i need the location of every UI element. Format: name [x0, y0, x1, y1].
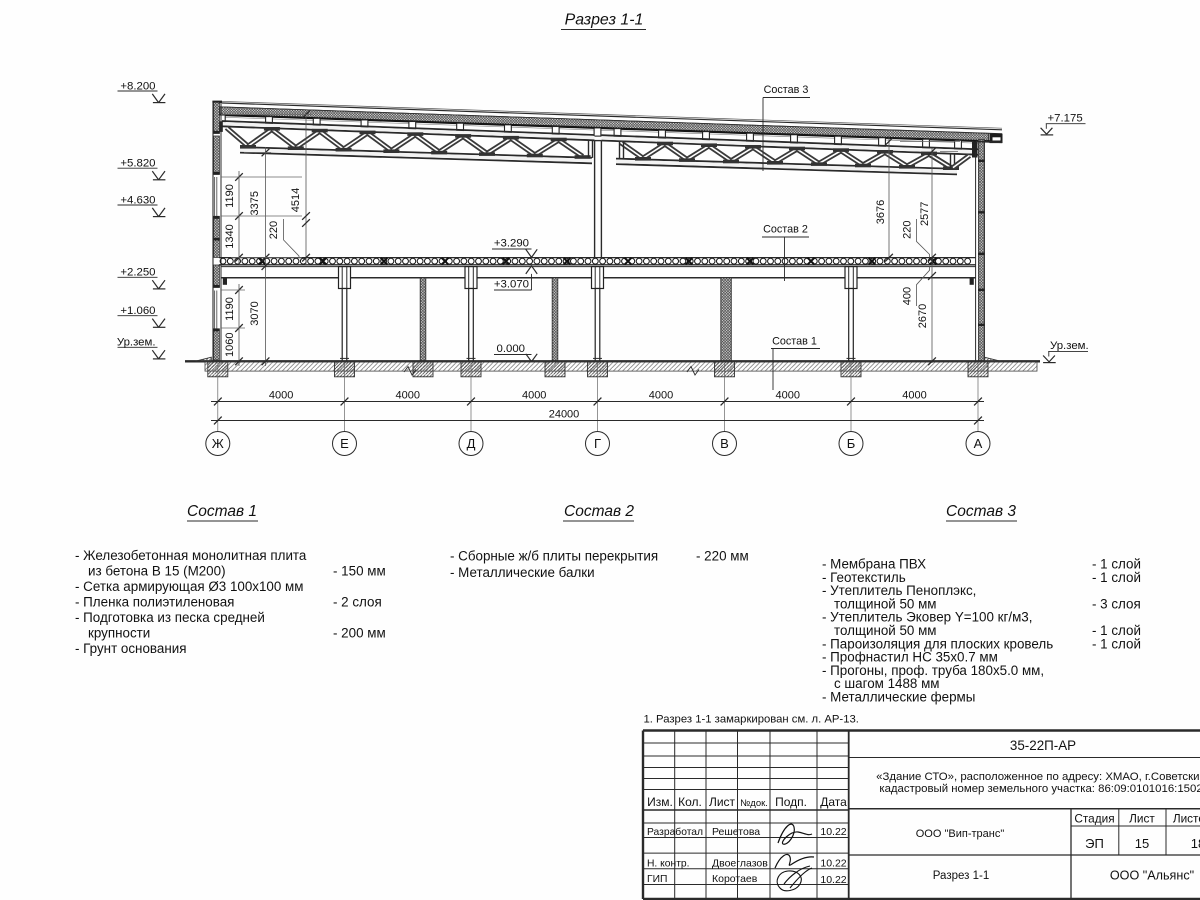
- svg-text:0.000: 0.000: [496, 343, 525, 355]
- svg-text:2670: 2670: [917, 304, 929, 328]
- svg-text:- Металлические фермы: - Металлические фермы: [822, 690, 975, 705]
- svg-text:4000: 4000: [776, 389, 800, 401]
- svg-text:1. Разрез 1-1 замаркирован см.: 1. Разрез 1-1 замаркирован см. л. АР-13.: [644, 714, 859, 726]
- svg-text:- Железобетонная монолитная п: - Железобетонная монолитная плита: [75, 548, 307, 563]
- svg-text:- 200 мм: - 200 мм: [333, 626, 386, 641]
- svg-text:кадастровый номер земельного у: кадастровый номер земельного участка: 86…: [879, 783, 1200, 795]
- svg-text:10.22: 10.22: [820, 858, 846, 870]
- svg-text:- 220 мм: - 220 мм: [696, 548, 749, 563]
- svg-text:ЭП: ЭП: [1085, 836, 1104, 851]
- svg-text:4000: 4000: [649, 389, 673, 401]
- svg-text:3070: 3070: [249, 301, 261, 325]
- svg-text:- 150 мм: - 150 мм: [333, 564, 386, 579]
- svg-text:Н. контр.: Н. контр.: [647, 859, 690, 870]
- svg-text:- Сборные ж/б плиты перекрытия: - Сборные ж/б плиты перекрытия: [450, 548, 658, 563]
- svg-text:Состав 2: Состав 2: [564, 503, 634, 520]
- svg-text:Г: Г: [594, 436, 601, 451]
- svg-text:24000: 24000: [549, 409, 580, 421]
- svg-text:3375: 3375: [249, 191, 261, 215]
- svg-text:- Пленка полиэтиленовая: - Пленка полиэтиленовая: [75, 595, 234, 610]
- svg-text:4000: 4000: [902, 389, 926, 401]
- svg-text:Разработал: Разработал: [647, 826, 703, 838]
- svg-text:крупности: крупности: [88, 626, 150, 641]
- svg-text:Состав 3: Состав 3: [946, 503, 1016, 520]
- svg-text:+8.200: +8.200: [120, 80, 155, 92]
- svg-text:Подп.: Подп.: [775, 795, 807, 809]
- svg-text:Состав 1: Состав 1: [772, 336, 817, 348]
- svg-text:Изм.: Изм.: [647, 795, 673, 809]
- svg-text:- Металлические балки: - Металлические балки: [450, 565, 595, 580]
- svg-text:4000: 4000: [522, 389, 546, 401]
- svg-text:4514: 4514: [290, 188, 302, 212]
- svg-text:4000: 4000: [269, 389, 293, 401]
- svg-text:Разрез 1-1: Разрез 1-1: [933, 870, 989, 882]
- svg-text:- 3 слоя: - 3 слоя: [1092, 596, 1141, 611]
- svg-text:1060: 1060: [224, 332, 236, 356]
- svg-text:№док.: №док.: [740, 798, 768, 809]
- svg-text:Кол.: Кол.: [678, 795, 702, 809]
- svg-text:Д: Д: [467, 436, 476, 451]
- svg-text:ООО "Альянс": ООО "Альянс": [1110, 869, 1194, 883]
- svg-text:4000: 4000: [396, 389, 420, 401]
- svg-text:А: А: [974, 436, 983, 451]
- svg-text:+1.060: +1.060: [120, 305, 155, 317]
- svg-text:Коротаев: Коротаев: [712, 873, 758, 885]
- svg-text:10.22: 10.22: [820, 874, 846, 886]
- svg-text:Ж: Ж: [212, 436, 224, 451]
- svg-text:1190: 1190: [224, 297, 236, 321]
- svg-text:Лист: Лист: [1129, 812, 1155, 826]
- svg-text:1190: 1190: [224, 184, 236, 208]
- svg-text:- 1 слой: - 1 слой: [1092, 570, 1141, 585]
- svg-text:Е: Е: [340, 436, 349, 451]
- svg-text:+3.290: +3.290: [494, 238, 529, 250]
- svg-text:Решетова: Решетова: [712, 826, 760, 838]
- svg-text:Стадия: Стадия: [1074, 812, 1114, 826]
- svg-text:+2.250: +2.250: [120, 267, 155, 279]
- svg-text:- 2 слоя: - 2 слоя: [333, 595, 382, 610]
- svg-text:2577: 2577: [919, 202, 931, 226]
- svg-text:В: В: [720, 436, 729, 451]
- svg-text:10.22: 10.22: [820, 826, 846, 838]
- svg-text:+7.175: +7.175: [1048, 112, 1083, 124]
- svg-text:ООО "Вип-транс": ООО "Вип-транс": [916, 828, 1005, 840]
- svg-text:Дата: Дата: [820, 795, 847, 809]
- svg-text:Лист: Лист: [709, 795, 736, 809]
- svg-text:220: 220: [902, 221, 914, 239]
- svg-text:- 1 слой: - 1 слой: [1092, 636, 1141, 651]
- svg-text:- Сетка армирующая Ø3 100х100: - Сетка армирующая Ø3 100х100 мм: [75, 579, 303, 594]
- svg-text:Состав 2: Состав 2: [763, 224, 808, 236]
- svg-text:Состав 3: Состав 3: [764, 84, 809, 96]
- svg-text:15: 15: [1135, 836, 1149, 851]
- svg-text:- Грунт основания: - Грунт основания: [75, 641, 186, 656]
- svg-text:220: 220: [268, 221, 280, 239]
- svg-text:- Подготовка из песка средней: - Подготовка из песка средней: [75, 610, 265, 625]
- svg-text:+3.070: +3.070: [494, 279, 529, 291]
- svg-text:Разрез 1-1: Разрез 1-1: [565, 12, 644, 29]
- svg-text:Ур.зем.: Ур.зем.: [1050, 340, 1089, 352]
- svg-text:Листов: Листов: [1173, 812, 1200, 826]
- svg-text:из бетона В 15 (М200): из бетона В 15 (М200): [88, 564, 226, 579]
- svg-text:+5.820: +5.820: [120, 158, 155, 170]
- svg-text:18: 18: [1191, 836, 1200, 851]
- svg-text:35-22П-АР: 35-22П-АР: [1010, 738, 1076, 753]
- svg-text:1340: 1340: [224, 224, 236, 248]
- svg-text:Двоеглазов: Двоеглазов: [712, 858, 768, 870]
- svg-text:ГИП: ГИП: [647, 874, 667, 885]
- svg-text:Ур.зем.: Ур.зем.: [117, 337, 156, 349]
- svg-text:3676: 3676: [875, 200, 887, 224]
- svg-text:+4.630: +4.630: [120, 194, 155, 206]
- svg-text:Б: Б: [847, 436, 856, 451]
- svg-text:400: 400: [902, 287, 914, 305]
- svg-text:«Здание СТО», расположенное по: «Здание СТО», расположенное по адресу: Х…: [876, 771, 1200, 783]
- svg-text:Состав 1: Состав 1: [187, 503, 257, 520]
